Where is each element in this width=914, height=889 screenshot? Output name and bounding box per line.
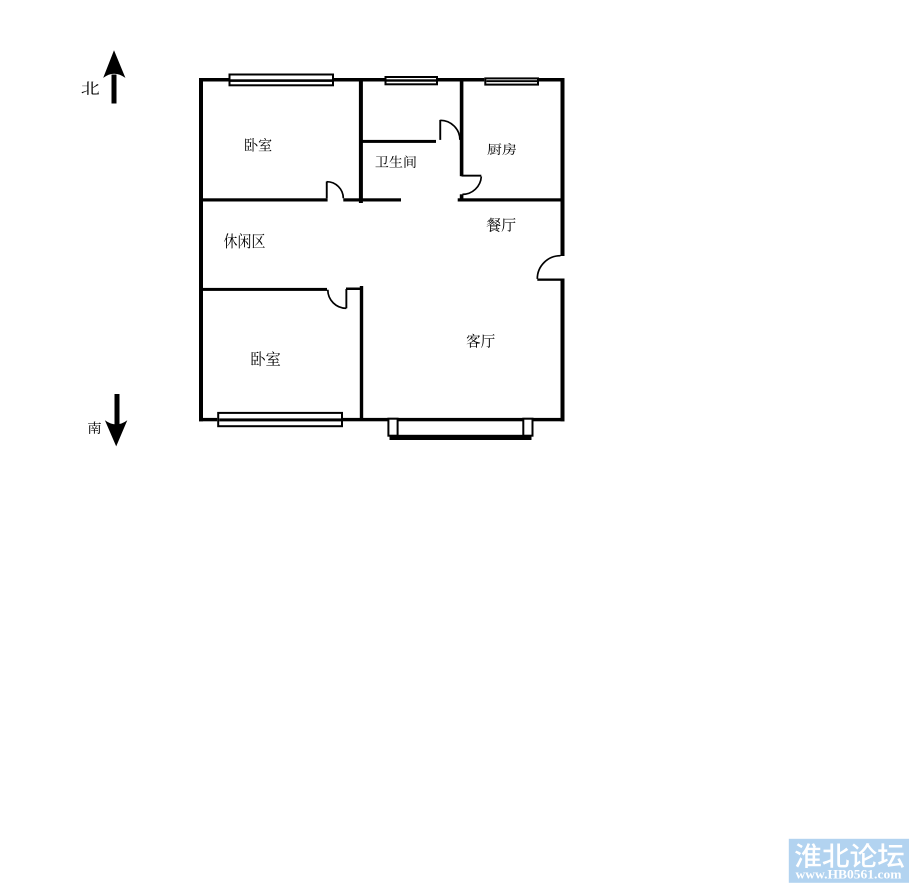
svg-text:www.HB0561.com: www.HB0561.com [796, 866, 902, 881]
